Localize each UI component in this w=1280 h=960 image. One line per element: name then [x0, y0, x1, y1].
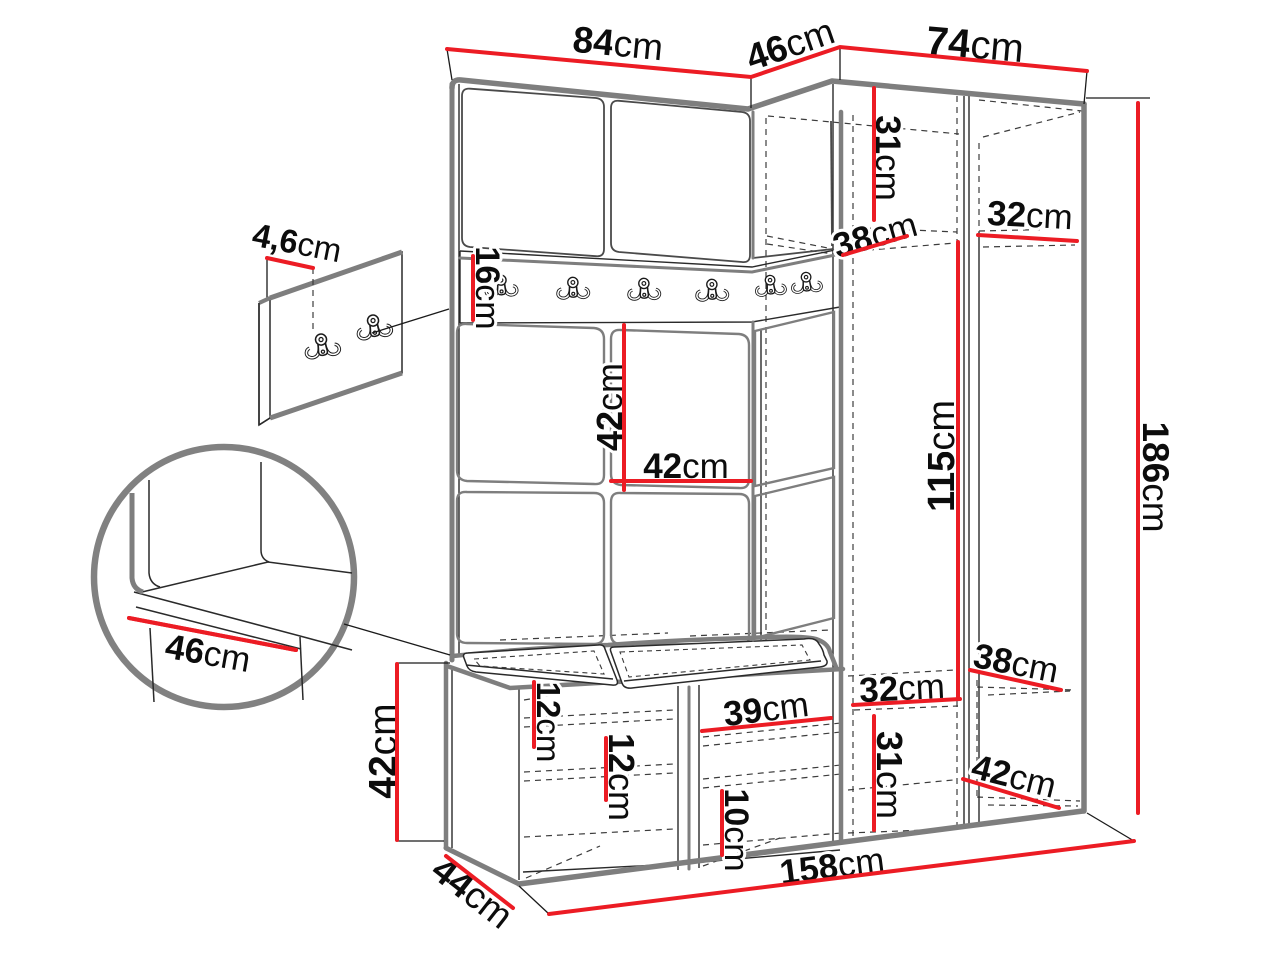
svg-text:32cm: 32cm: [986, 194, 1074, 237]
svg-text:186cm: 186cm: [1135, 421, 1176, 532]
